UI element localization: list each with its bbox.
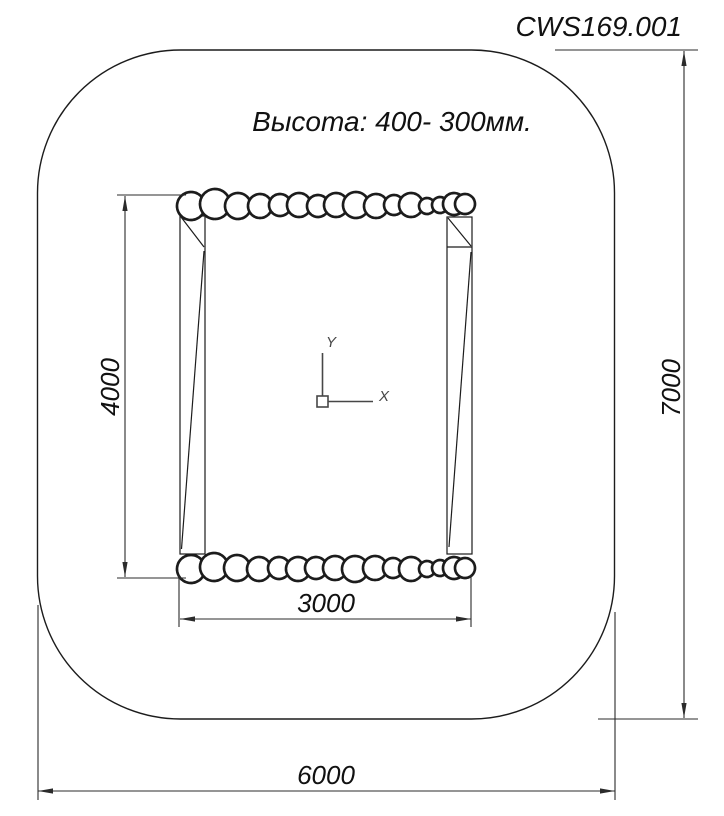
arrowhead-down-icon (122, 562, 127, 577)
arrowhead-right-icon (456, 616, 471, 621)
right-post (447, 217, 472, 554)
stones-top-row (177, 189, 475, 220)
dimension-outer-width: 6000 (38, 605, 615, 800)
dimension-outer-height: 7000 (555, 50, 698, 719)
left-post-brace-long (182, 251, 205, 549)
dimension-value: 4000 (95, 358, 125, 416)
left-post-body (180, 216, 205, 554)
ucs-origin-square-icon (317, 396, 328, 407)
arrowhead-left-icon (38, 788, 53, 793)
drawing-page: CWS169.001 Высота: 400- 300мм. (0, 0, 724, 816)
height-note: Высота: 400- 300мм. (252, 106, 532, 137)
left-post (180, 216, 205, 554)
stone-circle (455, 194, 475, 214)
arrowhead-up-icon (681, 51, 686, 66)
stones-bottom-row (177, 553, 475, 583)
arrowhead-left-icon (180, 616, 195, 621)
dimension-value: 3000 (297, 588, 355, 618)
ucs-origin-marker: Y X (317, 334, 390, 407)
drawing-number: CWS169.001 (515, 11, 682, 42)
cad-drawing-canvas: CWS169.001 Высота: 400- 300мм. (0, 0, 724, 816)
ucs-y-label: Y (326, 334, 337, 351)
dimension-value: 7000 (656, 359, 686, 417)
left-post-brace-short (181, 217, 204, 247)
stone-circle (455, 558, 475, 578)
arrowhead-up-icon (122, 196, 127, 211)
right-post-brace-long (449, 252, 471, 547)
right-post-brace-short (448, 218, 471, 246)
arrowhead-right-icon (600, 788, 615, 793)
arrowhead-down-icon (681, 703, 686, 718)
dimension-inner-width: 3000 (179, 575, 471, 627)
right-post-body (447, 217, 472, 554)
dimension-inner-height: 4000 (95, 195, 186, 578)
ucs-x-label: X (378, 388, 390, 405)
dimension-value: 6000 (297, 760, 355, 790)
